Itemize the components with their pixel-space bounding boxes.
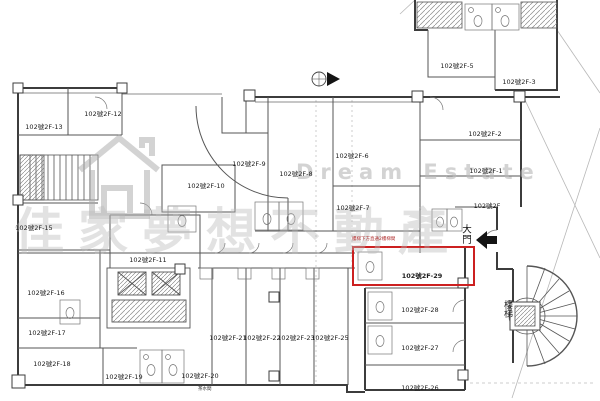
room-label-2f: 102號2F [474, 200, 501, 210]
entrance-arrow-icon [476, 231, 497, 249]
north-arrow-icon [312, 72, 340, 86]
room-label-2f-21: 102號2F-21 [209, 332, 246, 342]
room-label-2f-3: 102號2F-3 [502, 76, 535, 86]
room-label-2f-8: 102號2F-8 [279, 168, 312, 178]
room-label-2f-17: 102號2F-17 [28, 327, 65, 337]
room-label-2f-12: 102號2F-12 [84, 108, 121, 118]
room-label-2f-19: 102號2F-19 [105, 371, 142, 381]
room-label-2f-15: 102號2F-15 [15, 222, 52, 232]
entrance-label: 大門 [458, 224, 472, 245]
room-label-2f-9: 102號2F-9 [232, 158, 265, 168]
stair-label: 樓梯 [501, 300, 514, 318]
room-label-2f-6: 102號2F-6 [335, 150, 368, 160]
grid-lines [316, 100, 593, 385]
room-label-2f-10: 102號2F-10 [187, 180, 224, 190]
room-label-2f-18: 102號2F-18 [33, 358, 70, 368]
room-label-2f-13: 102號2F-13 [25, 121, 62, 131]
room-label-2f-25: 102號2F-25 [311, 332, 348, 342]
room-label-2f-16: 102號2F-16 [27, 287, 64, 297]
room-label-2f-29: 102號2F-29 [402, 270, 443, 280]
room-label-2f-5: 102號2F-5 [440, 60, 473, 70]
floor-plan: Dream Estate 佳家夢想不動產 大門 樓梯 樓梯下方直通2樓梯間 茶水… [0, 0, 600, 401]
room-label-2f-23: 102號2F-23 [277, 332, 314, 342]
room-label-2f-22: 102號2F-22 [243, 332, 280, 342]
stairs-top [417, 2, 557, 28]
elevator-core [107, 268, 190, 328]
room-label-2f-2: 102號2F-2 [468, 128, 501, 138]
pantry-label: 茶水間 [198, 386, 212, 392]
room-label-2f-11: 102號2F-11 [129, 254, 166, 264]
room-label-2f-26: 102號2F-26 [401, 382, 438, 392]
site-boundary-lines [400, 0, 600, 398]
room-label-2f-1: 102號2F-1 [469, 165, 502, 175]
room-label-2f-7: 102號2F-7 [336, 202, 369, 212]
room-label-2f-28: 102號2F-28 [401, 304, 438, 314]
stairs-left [20, 155, 98, 200]
spiral-staircase [509, 266, 577, 366]
room-label-2f-20: 102號2F-20 [181, 370, 218, 380]
red-annotation: 樓梯下方直通2樓梯間 [352, 236, 395, 242]
room-label-2f-27: 102號2F-27 [401, 342, 438, 352]
